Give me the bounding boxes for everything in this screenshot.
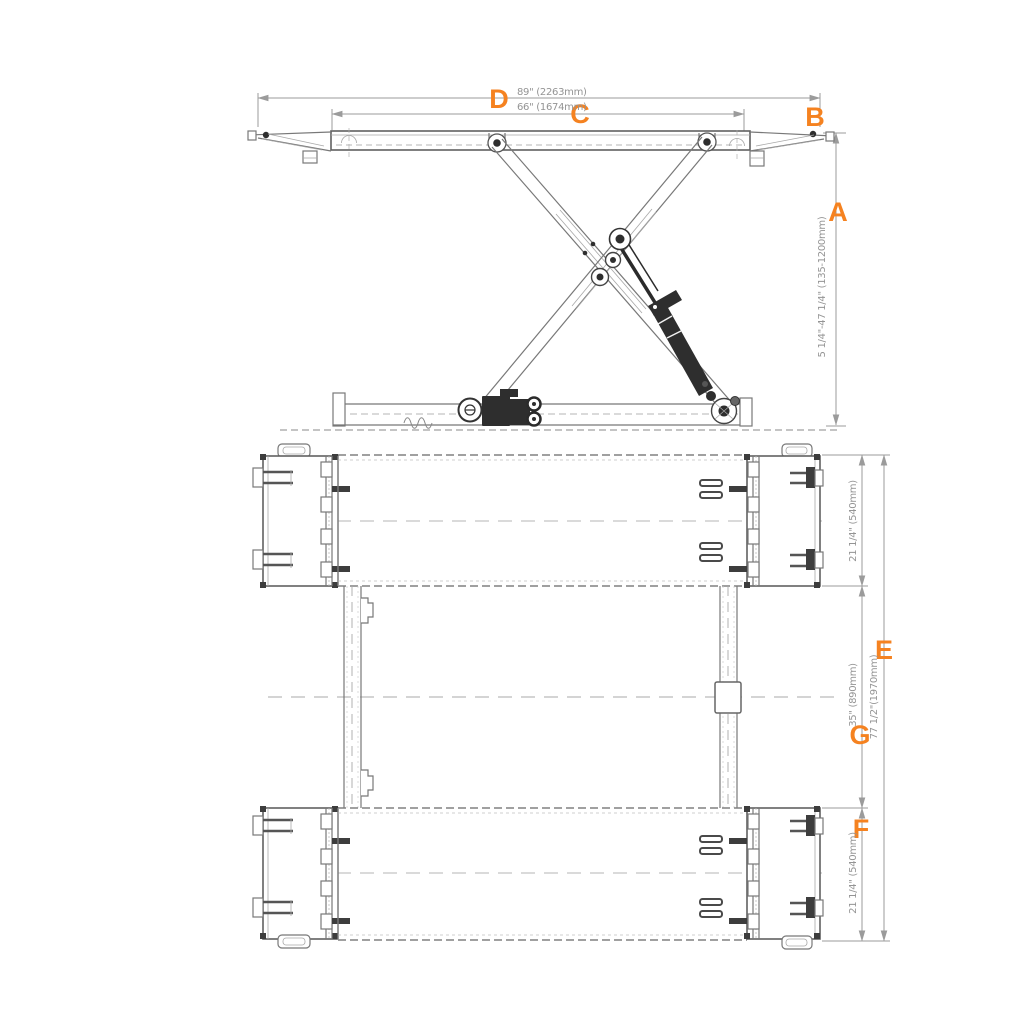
base-roller [712,397,740,424]
slot [700,492,722,498]
ramp-handle [782,444,812,457]
connecting-rails [344,586,741,808]
plan-dimensions: 21 1/4" (540mm) 35" (890mm) G F 21 1/4" … [822,455,893,941]
right-ramp-side [750,131,834,166]
slot [700,911,722,917]
pump-unit [404,389,541,428]
side-view: D 89" (2263mm) C 66" (1674mm) B A 5 1/4"… [248,84,848,430]
slot [700,480,722,486]
scissor-mechanism [483,137,733,412]
upper-pivot-left [488,133,506,152]
platform-deck [248,128,834,166]
bottom-platform [253,806,823,949]
dim-value-a: 5 1/4"-47 1/4" (135-1200mm) [817,216,828,357]
slot [700,899,722,905]
slot [700,836,722,842]
dim-label-a: A [828,197,848,227]
left-ramp-side [248,131,331,163]
right-rail [715,586,741,808]
ramp-handle [782,936,812,949]
dim-label-d: D [489,84,509,114]
top-right-ramp [729,444,823,588]
slot [700,543,722,549]
dimension-bottom-width: F 21 1/4" (540mm) [848,808,869,941]
dim-value-top-width: 21 1/4" (540mm) [848,480,859,562]
dimension-c: C 66" (1674mm) [332,99,744,131]
center-pivots [583,229,631,286]
dim-value-gap: 35" (890mm) [848,663,859,727]
dimension-overall: E 77 1/2"(1970mm) [869,455,893,941]
plan-view: 21 1/4" (540mm) 35" (890mm) G F 21 1/4" … [253,444,893,949]
slot [700,848,722,854]
dim-label-g: G [849,720,870,750]
dim-value-c: 66" (1674mm) [517,102,587,113]
top-platform [253,444,823,588]
bottom-left-ramp [253,806,350,948]
slot [700,555,722,561]
bottom-platform-body [338,808,747,940]
hydraulic-cylinder [618,240,716,401]
technical-drawing: D 89" (2263mm) C 66" (1674mm) B A 5 1/4"… [0,0,1024,1022]
upper-pivot-right [698,133,716,151]
dim-label-b: B [805,102,825,132]
dimension-a: A 5 1/4"-47 1/4" (135-1200mm) [817,133,848,426]
dim-value-bottom-width: 21 1/4" (540mm) [848,832,859,914]
dimension-top-width: 21 1/4" (540mm) [848,455,862,586]
bottom-right-ramp [729,806,823,949]
dim-value-d: 89" (2263mm) [517,87,587,98]
top-left-ramp [253,444,350,588]
deck-body [331,131,750,150]
scissor-lift-drawing-page: D 89" (2263mm) C 66" (1674mm) B A 5 1/4"… [0,0,1024,1022]
base-frame [280,389,838,430]
rail-block [715,682,741,713]
dimension-gap: 35" (890mm) G [848,586,871,808]
dim-value-overall: 77 1/2"(1970mm) [869,654,880,739]
